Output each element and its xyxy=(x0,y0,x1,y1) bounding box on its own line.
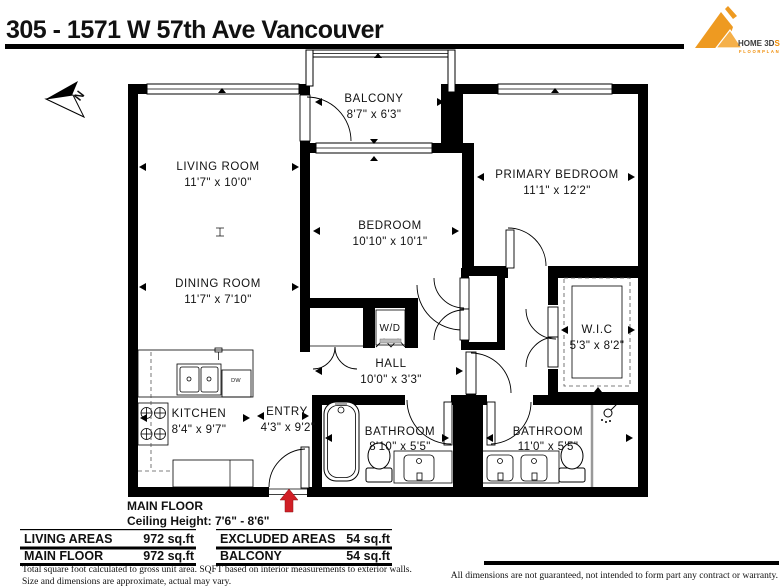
dining-room-label: DINING ROOM xyxy=(175,278,261,290)
logo-peak-icon xyxy=(725,6,737,19)
bathroom-1-label: BATHROOM xyxy=(365,426,435,438)
bathroom-1-dims: 8'10" x 5'5" xyxy=(369,441,430,453)
hall-closet-double-doors xyxy=(310,346,363,369)
living-areas-table: LIVING AREAS 972 sq.ft MAIN FLOOR 972 sq… xyxy=(20,529,196,566)
living-room-marker xyxy=(216,228,224,236)
bathroom-2-dims: 11'0" x 5'5" xyxy=(518,441,579,453)
dishwasher-label: DW xyxy=(231,378,241,384)
disclaimer-rule xyxy=(484,561,779,565)
dining-room-dims: 11'7" x 7'10" xyxy=(184,294,251,306)
wic-french-doors xyxy=(526,307,558,367)
bathtub xyxy=(324,402,359,481)
north-arrow: N xyxy=(46,81,87,117)
kitchen-dims: 8'4" x 9'7" xyxy=(172,424,227,436)
bedroom-dims: 10'10" x 10'1" xyxy=(352,236,427,248)
primary-suite-door xyxy=(466,352,511,394)
balcony-dims: 8'7" x 6'3" xyxy=(347,109,402,121)
living-room-dims: 11'7" x 10'0" xyxy=(184,177,251,189)
ceiling-height-caption: Ceiling Height: 7'6" - 8'6" xyxy=(127,514,269,528)
disclaimer-text: All dimensions are not guaranteed, not i… xyxy=(451,570,778,581)
living-room-label: LIVING ROOM xyxy=(176,161,259,173)
wic-label: W.I.C xyxy=(581,324,612,336)
bedroom-balcony-window xyxy=(316,143,432,153)
entry-label: ENTRY xyxy=(266,406,308,418)
footnote-line-2: Size and dimensions are approximate, act… xyxy=(22,577,231,586)
wd-label: W/D xyxy=(380,323,401,334)
main-floor-row-value: 972 sq.ft xyxy=(143,549,195,563)
main-floor-row-label: MAIN FLOOR xyxy=(24,549,103,563)
excluded-areas-header-value: 54 sq.ft xyxy=(346,532,391,546)
floorplan-image: 305 - 1571 W 57th Ave Vancouver HOME 3DS… xyxy=(0,0,781,586)
footer: MAIN FLOOR Ceiling Height: 7'6" - 8'6" L… xyxy=(20,499,779,586)
bedroom-closet-doors xyxy=(434,278,469,340)
excluded-areas-header-label: EXCLUDED AREAS xyxy=(220,532,336,546)
kitchen-stove xyxy=(138,403,168,445)
excluded-areas-table: EXCLUDED AREAS 54 sq.ft BALCONY 54 sq.ft xyxy=(216,529,392,566)
entry-dims: 4'3" x 9'2" xyxy=(261,422,316,434)
logo-name: HOME 3D xyxy=(738,39,775,48)
hall-dims: 10'0" x 3'3" xyxy=(360,374,421,386)
vanity-2-double xyxy=(481,451,559,483)
primary-bedroom-door xyxy=(506,228,546,268)
brand-logo: HOME 3DS FLOORPLAN xyxy=(695,6,780,54)
balcony-row-value: 54 sq.ft xyxy=(346,549,391,563)
logo-subtitle: FLOORPLAN xyxy=(739,49,780,54)
wd-stack: W/D xyxy=(376,310,405,345)
primary-bedroom-label: PRIMARY BEDROOM xyxy=(495,169,619,181)
shower xyxy=(592,402,619,487)
kitchen-label: KITCHEN xyxy=(172,408,227,420)
title-underline xyxy=(5,44,684,49)
header: 305 - 1571 W 57th Ave Vancouver HOME 3DS… xyxy=(5,6,780,54)
bathroom-2-door xyxy=(487,402,531,445)
footnote-line-1: Total square foot calculated to gross un… xyxy=(22,564,412,575)
floorplan-page: 305 - 1571 W 57th Ave Vancouver HOME 3DS… xyxy=(0,0,781,586)
logo-text: HOME 3DS xyxy=(738,39,780,48)
hall-label: HALL xyxy=(375,358,406,370)
vanity-1 xyxy=(394,451,452,483)
balcony-label: BALCONY xyxy=(344,93,403,105)
main-floor-caption: MAIN FLOOR xyxy=(127,499,203,513)
kitchen-counter: DW xyxy=(138,348,253,397)
living-areas-header-value: 972 sq.ft xyxy=(143,532,195,546)
balcony-door xyxy=(300,95,351,141)
balcony-row-label: BALCONY xyxy=(220,549,282,563)
wic-dims: 5'3" x 8'2" xyxy=(570,340,625,352)
bedroom-label: BEDROOM xyxy=(358,220,422,232)
primary-bedroom-dims: 11'1" x 12'2" xyxy=(523,185,590,197)
logo-accent: S xyxy=(774,39,780,48)
living-areas-header-label: LIVING AREAS xyxy=(24,532,112,546)
bathroom-2-label: BATHROOM xyxy=(513,426,583,438)
page-title: 305 - 1571 W 57th Ave Vancouver xyxy=(6,16,384,44)
